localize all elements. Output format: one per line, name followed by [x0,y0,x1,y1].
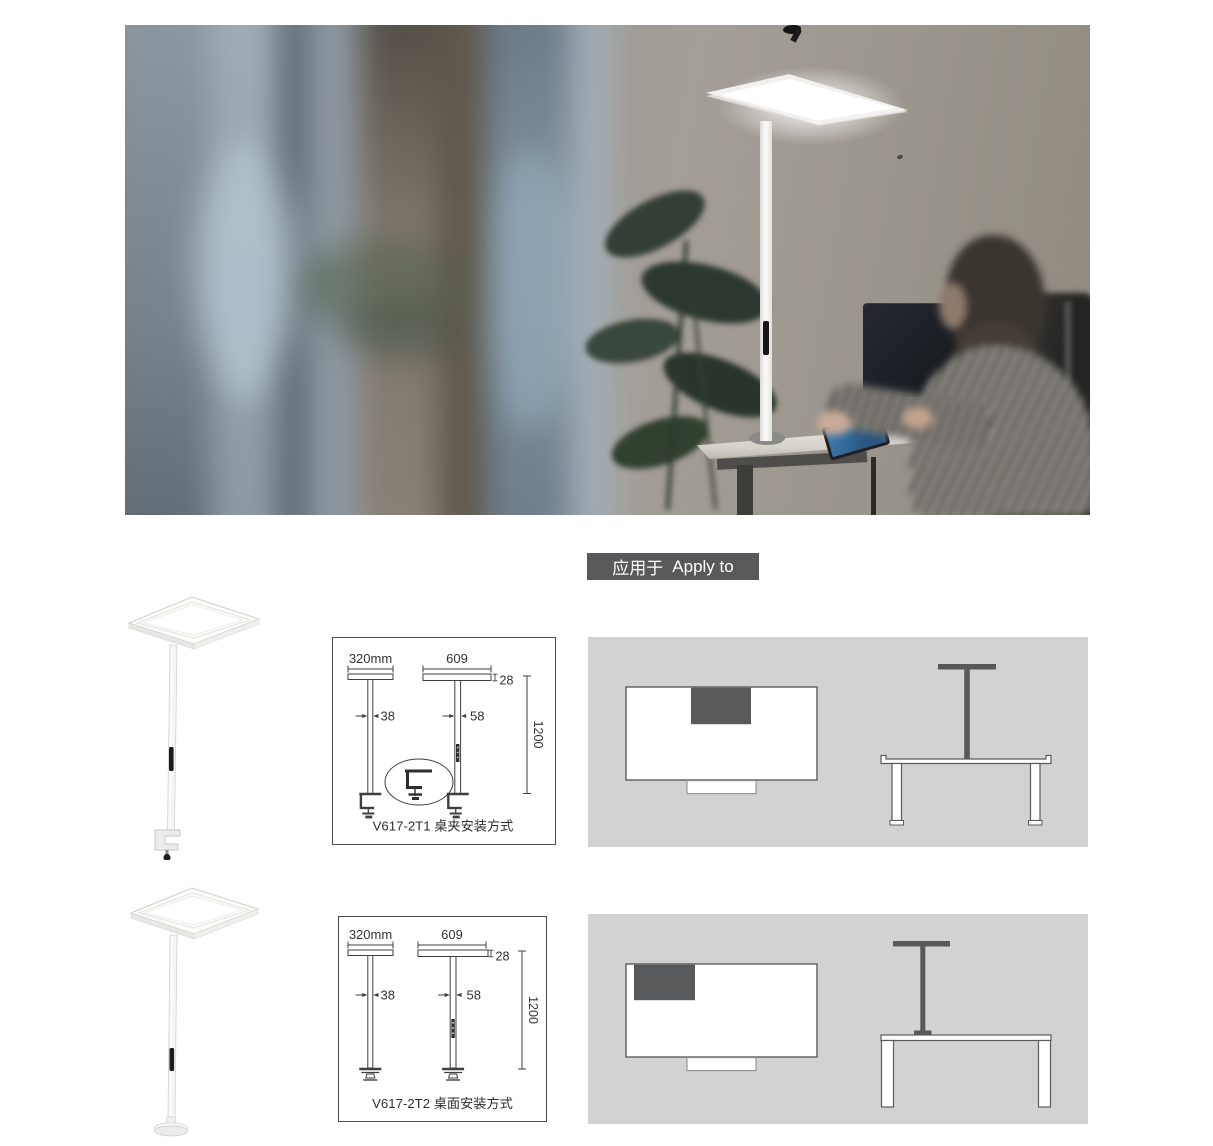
lamp-head [703,71,913,133]
dim-head-side-width: 320mm [349,927,392,942]
dimension-arrows [362,714,466,718]
lamp-clamp-mount-render [128,592,292,860]
dim-head-thickness: 28 [500,674,514,688]
tech-drawing-desk-svg: 320mm 609 28 38 58 1200 V617-2T2 桌面安装方式 [339,917,546,1121]
person [895,225,1090,515]
lamp-pole [760,121,772,441]
dim-head-front-width: 609 [446,651,468,666]
plant-leaf [605,406,714,480]
clamp-glyph [447,794,469,817]
lamp-pole-side [964,670,970,759]
desk-column [737,465,753,515]
apply-to-label-en: Apply to [672,557,733,577]
dim-head-thickness: 28 [496,950,510,964]
hero-photo [125,25,1090,515]
base-plate [914,1031,932,1036]
lamp-head-position [691,688,751,725]
dim-head-front-width: 609 [441,927,463,942]
dim-pole-front: 58 [470,709,484,724]
mount-type-caption: V617-2T1 桌夹安装方式 [373,819,514,834]
window-light [195,140,295,400]
desk-leg [871,457,876,515]
apply-to-label: 应用于 Apply to [587,553,759,580]
lamp-pole-side [920,947,925,1032]
application-diagram-clamp-mount [588,637,1088,847]
person-face [939,283,967,329]
desk-base-glyph [359,1069,381,1080]
application-diagram-desk-mount [588,914,1088,1124]
dimension-drawing-clamp-mount: 320mm 609 28 38 58 1200 V617-2T1 桌夹安装方式 [332,637,556,845]
dimension-drawing-desk-mount: 320mm 609 28 38 58 1200 V617-2T2 桌面安装方式 [338,916,547,1122]
lamp-control-strip [763,321,769,355]
window-light [490,150,570,430]
apply-to-label-zh: 应用于 [612,554,663,579]
lamp-pole [168,935,177,1117]
dim-pole-side: 38 [381,988,395,1003]
catalog-page: 应用于 Apply to [0,0,1213,1146]
clamp-glyph [359,794,381,817]
clamp-base [155,830,180,850]
person-hand [903,407,933,429]
plant-leaf [595,177,715,271]
lamp-head-position [634,965,695,1001]
desk-top-view [626,964,817,1071]
product-photo-desk-mount [130,885,290,1140]
apply-diagram-desk-svg [588,914,1088,1124]
dim-pole-front: 58 [467,988,481,1003]
dim-head-side-width: 320mm [349,651,392,666]
lamp-control-strip [170,1048,175,1071]
desk-base-glyph [442,1069,464,1080]
mount-type-caption: V617-2T2 桌面安装方式 [372,1096,513,1111]
dimension-arrows [362,993,461,997]
apply-diagram-clamp-svg [588,637,1088,847]
clamp-knob [163,854,170,860]
dim-pole-side: 38 [381,709,395,724]
dim-mount-height: 1200 [526,996,540,1024]
tech-drawing-clamp-svg: 320mm 609 28 38 58 1200 V617-2T1 桌夹安装方式 [333,638,555,844]
foliage-hint [340,300,460,360]
person-hand [817,411,851,435]
desk-top-view [626,687,817,794]
product-photo-clamp-mount [128,592,292,860]
curtains [125,25,615,515]
lamp-desk-mount-render [130,885,290,1140]
lamp-control-strip [169,747,174,771]
dim-mount-height: 1200 [531,721,545,749]
